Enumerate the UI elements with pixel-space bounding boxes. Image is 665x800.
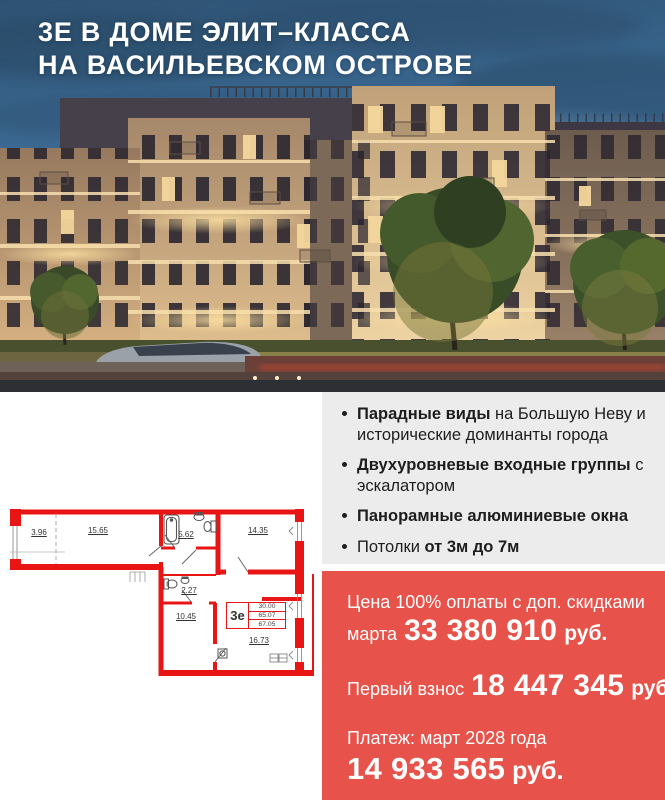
area-value-total: 67.05: [249, 620, 285, 628]
full-payment-block: Цена 100% оплаты с доп. скидками марта 3…: [347, 591, 659, 648]
first-installment-amount: 18 447 345: [471, 669, 624, 703]
features-list: Парадные виды на Большую Неву и историче…: [338, 404, 653, 558]
feature-text-bold: Двухуровневые входные группы: [357, 456, 631, 474]
price-panel: Цена 100% оплаты с доп. скидками марта 3…: [322, 571, 665, 800]
full-payment-label: Цена 100% оплаты с доп. скидками: [347, 591, 659, 614]
final-payment-block: Платеж: март 2028 года 14 933 565 руб.: [347, 727, 659, 786]
feature-text-bold: Панорамные алюминиевые окна: [357, 507, 628, 525]
area-value-living: 30.00: [249, 603, 285, 612]
feature-text: Потолки: [357, 538, 425, 556]
page-title-line2: НА ВАСИЛЬЕВСКОМ ОСТРОВЕ: [38, 49, 473, 82]
room-label-room1: 15.65: [88, 526, 108, 535]
feature-text-bold: Парадные виды: [357, 405, 490, 423]
first-installment-block: Первый взнос 18 447 345 руб.: [347, 669, 659, 703]
final-payment-label: Платеж: март 2028 года: [347, 727, 659, 750]
full-payment-currency: руб.: [564, 622, 607, 646]
features-panel: Парадные виды на Большую Неву и историче…: [322, 392, 665, 564]
first-installment-label: Первый взнос: [347, 678, 464, 701]
bullet-icon: [342, 462, 347, 467]
sink-icon: [194, 513, 204, 521]
room-label-room3: 16.73: [249, 636, 269, 645]
room-label-bathroom: 5.62: [178, 530, 194, 539]
final-payment-amount: 14 933 565: [347, 751, 505, 787]
plan-info-table: 3е 30.00 65.07 67.05: [226, 602, 286, 629]
room-label-wc: 2.27: [181, 586, 197, 595]
page-title-line1: 3Е В ДОМЕ ЭЛИТ–КЛАССА: [38, 16, 473, 49]
feature-item: Панорамные алюминиевые окна: [338, 506, 653, 527]
room-label-balcony: 3.96: [31, 528, 47, 537]
area-value-net: 65.07: [249, 612, 285, 621]
apartment-type: 3е: [227, 603, 249, 628]
bullet-icon: [342, 411, 347, 416]
light-trail: [260, 364, 665, 371]
feature-text-bold: от 3м до 7м: [425, 538, 520, 556]
bathtub-icon: [164, 515, 179, 544]
room-label-hall: 10.45: [176, 612, 196, 621]
ad-page: 3Е В ДОМЕ ЭЛИТ–КЛАССА НА ВАСИЛЬЕВСКОМ ОС…: [0, 0, 665, 800]
page-title: 3Е В ДОМЕ ЭЛИТ–КЛАССА НА ВАСИЛЬЕВСКОМ ОС…: [38, 16, 473, 83]
final-payment-currency: руб.: [512, 757, 563, 786]
full-payment-label2: марта: [347, 623, 397, 646]
full-payment-amount: 33 380 910: [404, 614, 557, 648]
floorplan: 3.96 15.65 5.62 14.35 2.27 10.45 16.73 3…: [10, 504, 315, 699]
feature-item: Двухуровневые входные группы с эскалатор…: [338, 455, 653, 497]
room-label-room2: 14.35: [248, 526, 268, 535]
building: [0, 86, 665, 352]
hero-photo: 3Е В ДОМЕ ЭЛИТ–КЛАССА НА ВАСИЛЬЕВСКОМ ОС…: [0, 0, 665, 392]
feature-item: Потолки от 3м до 7м: [338, 537, 653, 558]
toilet-icon: [204, 521, 216, 532]
first-installment-currency: руб.: [631, 677, 665, 701]
shaft-icon: [270, 654, 287, 662]
bullet-icon: [342, 513, 347, 518]
feature-item: Парадные виды на Большую Неву и историче…: [338, 404, 653, 446]
bullet-icon: [342, 544, 347, 549]
